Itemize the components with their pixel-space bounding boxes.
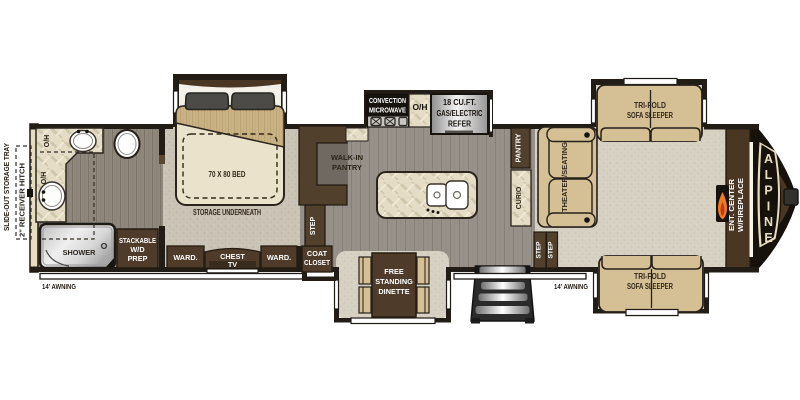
svg-text:W/D: W/D (130, 245, 144, 254)
svg-text:18 CU.FT.: 18 CU.FT. (443, 98, 476, 107)
svg-text:TV: TV (228, 260, 237, 269)
svg-text:STANDING: STANDING (375, 277, 413, 286)
svg-text:N: N (764, 215, 773, 229)
svg-text:WARD.: WARD. (173, 253, 197, 262)
svg-text:COAT: COAT (307, 249, 328, 258)
svg-text:70 X 80 BED: 70 X 80 BED (209, 170, 246, 179)
svg-text:ENT. CENTER: ENT. CENTER (727, 178, 736, 231)
svg-text:FREE: FREE (384, 267, 404, 276)
svg-text:STEP: STEP (536, 241, 543, 259)
svg-text:TRI-FOLD: TRI-FOLD (634, 272, 666, 281)
svg-text:THEATER/SEATING: THEATER/SEATING (560, 142, 569, 212)
svg-text:WARD.: WARD. (267, 253, 291, 262)
svg-text:O/H: O/H (412, 102, 427, 112)
svg-text:14' AWNING: 14' AWNING (554, 282, 588, 291)
svg-text:STACKABLE: STACKABLE (119, 236, 156, 245)
svg-text:WALK-IN: WALK-IN (331, 153, 363, 162)
svg-text:I: I (767, 199, 770, 213)
svg-text:O/H: O/H (41, 172, 48, 184)
svg-text:P: P (764, 184, 772, 198)
svg-text:CLOSET: CLOSET (304, 258, 330, 267)
svg-text:W/FIREPLACE: W/FIREPLACE (736, 178, 745, 232)
svg-text:STORAGE UNDERNEATH: STORAGE UNDERNEATH (193, 208, 261, 217)
svg-text:STEP: STEP (548, 241, 555, 259)
svg-text:TRI-FOLD: TRI-FOLD (634, 101, 666, 110)
svg-text:MICROWAVE: MICROWAVE (369, 106, 406, 115)
svg-text:PREP: PREP (128, 254, 148, 263)
svg-text:L: L (765, 168, 773, 182)
svg-text:E: E (764, 231, 772, 245)
svg-text:CONVECTION: CONVECTION (369, 96, 406, 105)
svg-text:SOFA SLEEPER: SOFA SLEEPER (627, 111, 673, 120)
svg-text:O/H: O/H (44, 135, 51, 147)
svg-text:SOFA SLEEPER: SOFA SLEEPER (627, 282, 673, 291)
svg-text:PANTRY: PANTRY (516, 133, 523, 162)
svg-text:PANTRY: PANTRY (332, 163, 362, 172)
svg-text:SLIDE-OUT STORAGE TRAY: SLIDE-OUT STORAGE TRAY (2, 143, 11, 231)
svg-text:14' AWNING: 14' AWNING (42, 282, 76, 291)
svg-text:GAS/ELECTRIC: GAS/ELECTRIC (437, 109, 483, 118)
svg-text:2" RECEIVER HITCH: 2" RECEIVER HITCH (18, 163, 27, 237)
svg-text:REFER: REFER (448, 120, 471, 129)
svg-text:DINETTE: DINETTE (378, 287, 409, 296)
svg-text:SHOWER: SHOWER (63, 248, 97, 257)
svg-text:CURIO: CURIO (516, 186, 523, 209)
svg-text:STEP: STEP (310, 217, 317, 236)
svg-text:A: A (764, 152, 773, 166)
